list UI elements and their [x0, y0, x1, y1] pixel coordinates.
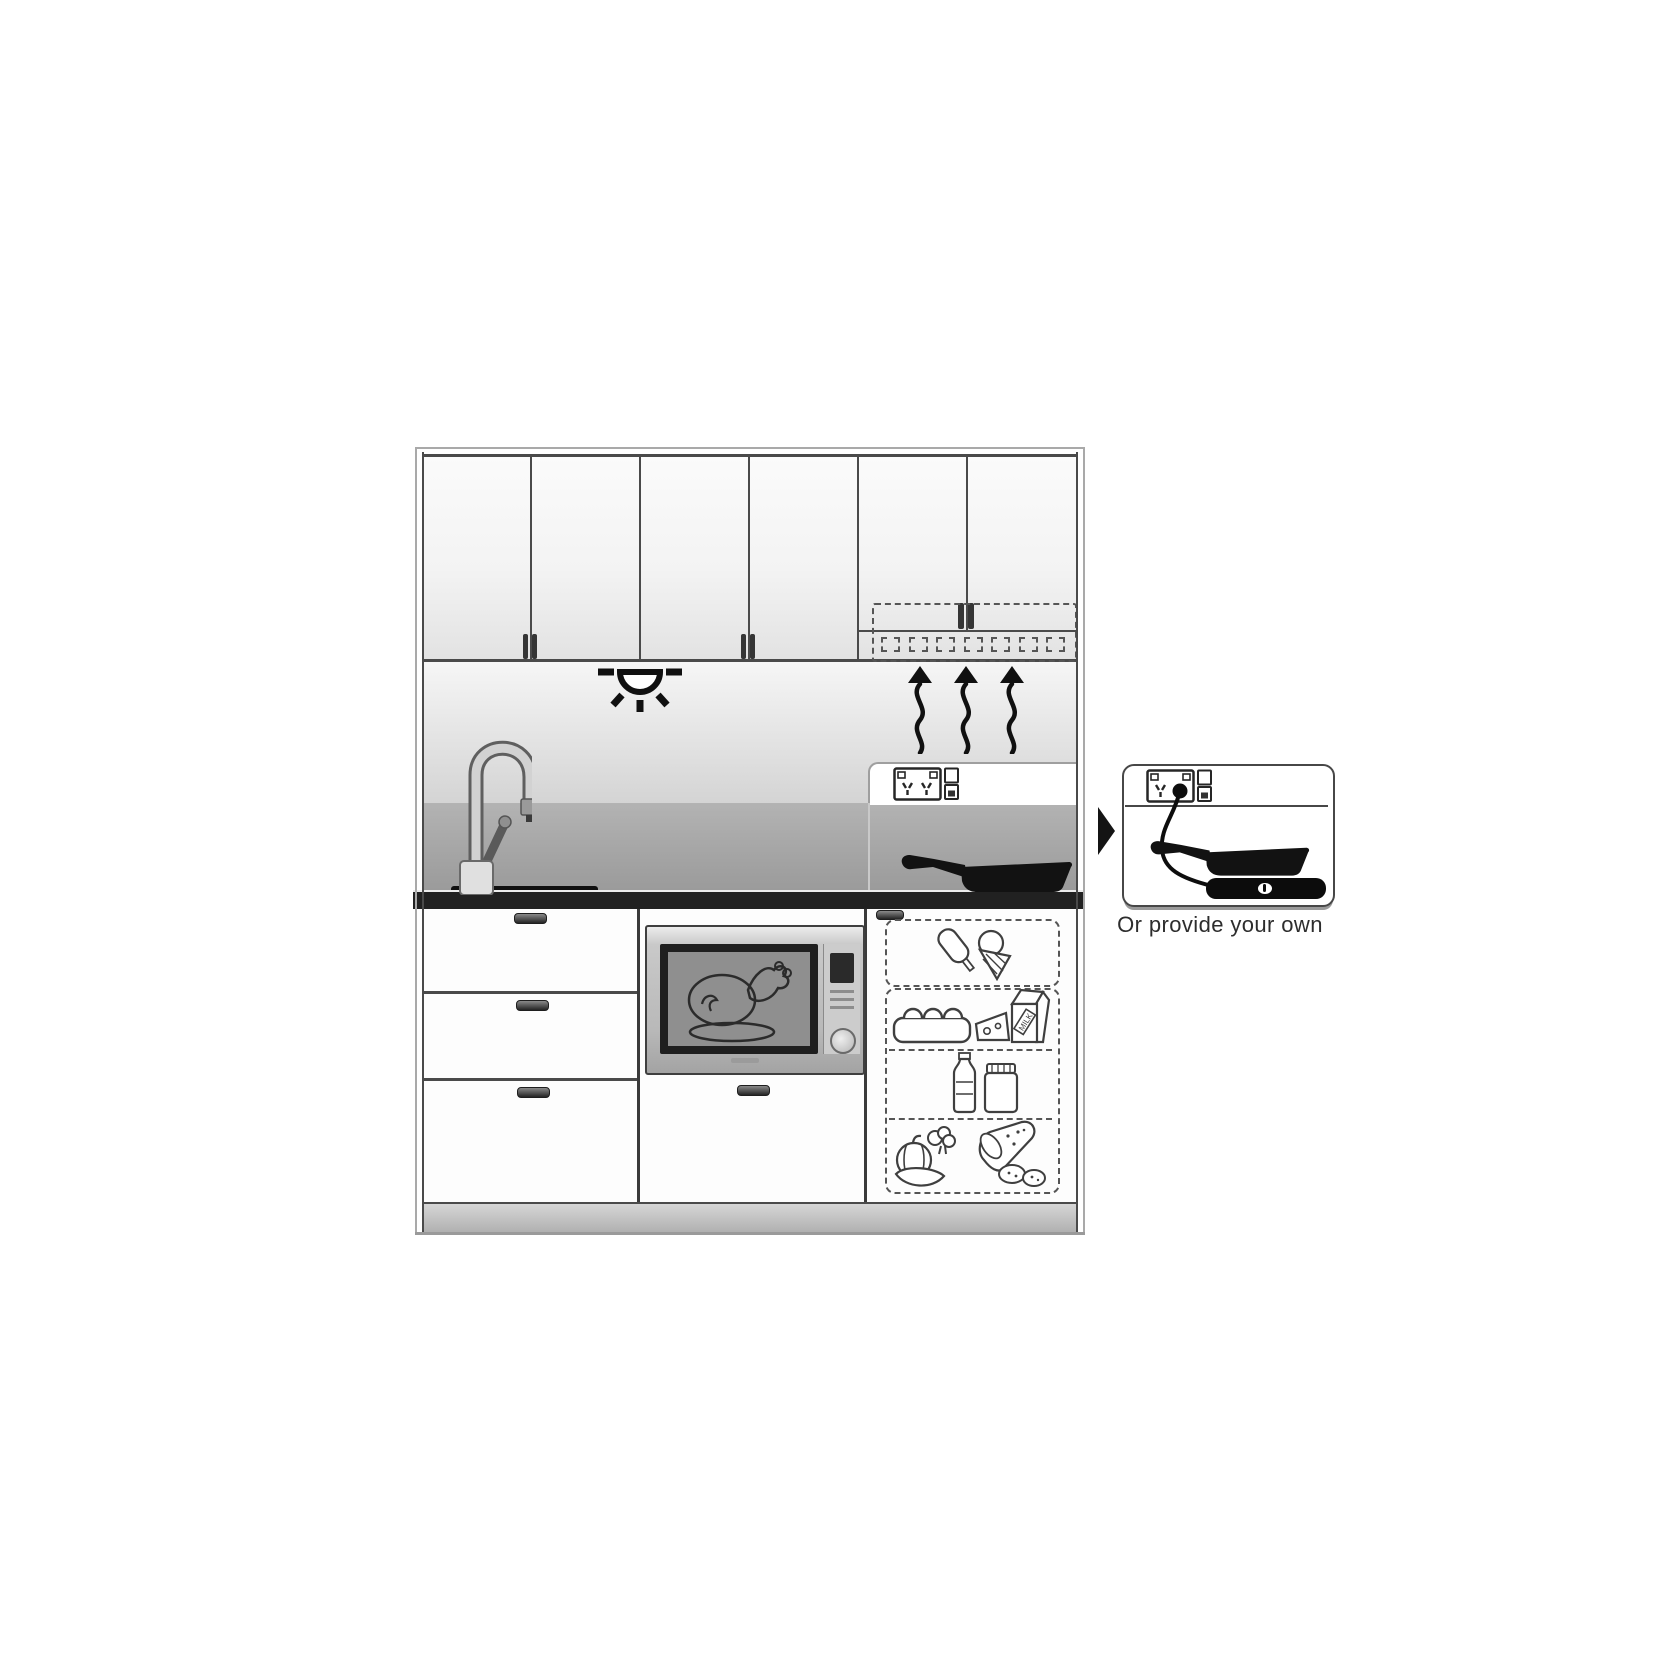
- unit-frame-right-inner: [1076, 452, 1078, 1233]
- microwave: [645, 925, 865, 1075]
- steam-arrow-icon: [907, 666, 933, 754]
- microwave-buttons: [830, 990, 854, 993]
- callout-arrow-icon: [1098, 807, 1115, 855]
- unit-frame-bottom: [415, 1232, 1085, 1235]
- callout-frying-pan-icon: [1150, 837, 1310, 877]
- vent-slot: [1046, 637, 1065, 652]
- handle-bar: [523, 634, 528, 659]
- upper-door-divider: [530, 456, 532, 660]
- eggs-cheese-milk-icons: MILK: [892, 988, 1056, 1048]
- upper-door-divider: [748, 456, 750, 660]
- ice-cream-icon: [933, 923, 1017, 981]
- unit-frame-left-outer: [415, 447, 417, 1235]
- rangehood-dashed-zone: [872, 603, 1077, 662]
- ceiling-light-icon: [596, 662, 684, 714]
- drawer-handle: [516, 1000, 549, 1011]
- unit-frame-right-outer: [1083, 447, 1085, 1235]
- vent-slot: [991, 637, 1010, 652]
- handle-bar: [750, 634, 755, 659]
- handle-bar: [532, 634, 537, 659]
- bottle-jar-icons: [946, 1052, 1026, 1114]
- vegetables-salami-icons: [888, 1116, 1056, 1188]
- microwave-control-panel: [823, 944, 860, 1054]
- drawer-divider: [424, 991, 637, 994]
- frying-pan-icon: [901, 851, 1073, 893]
- microwave-dial: [830, 1028, 856, 1054]
- unit-frame-left-inner: [422, 452, 424, 1233]
- cooktop-zone-edge: [868, 803, 870, 893]
- callout-caption: Or provide your own: [1100, 912, 1340, 938]
- roast-chicken-icon: [668, 952, 810, 1046]
- vent-slot: [964, 637, 983, 652]
- handle-bar: [741, 634, 746, 659]
- kitchen-diagram: MILK: [0, 0, 1676, 1676]
- rangehood-vent-grille: [881, 636, 1065, 652]
- vent-slot: [1019, 637, 1038, 652]
- power-outlet: [893, 767, 959, 802]
- faucet-icon: [432, 713, 532, 895]
- induction-control-dot: [1263, 884, 1266, 892]
- drawer-divider: [424, 1078, 637, 1081]
- vent-slot: [936, 637, 955, 652]
- microwave-brand: [731, 1058, 759, 1063]
- base-divider: [637, 909, 640, 1202]
- fridge-shelf-line: [889, 1049, 1052, 1051]
- microwave-buttons: [830, 1006, 854, 1009]
- steam-arrow-icon: [953, 666, 979, 754]
- microwave-buttons: [830, 998, 854, 1001]
- vent-slot: [909, 637, 928, 652]
- upper-door-divider: [639, 456, 641, 660]
- drawer-handle: [737, 1085, 770, 1096]
- microwave-display: [830, 953, 854, 983]
- steam-arrow-icon: [999, 666, 1025, 754]
- cabinet-handle: [523, 634, 537, 659]
- drawer-handle: [514, 913, 547, 924]
- unit-frame-top-outer: [415, 447, 1085, 449]
- drawer-handle: [517, 1087, 550, 1098]
- vent-slot: [881, 637, 900, 652]
- cabinet-handle: [741, 634, 755, 659]
- kickboard: [424, 1202, 1076, 1234]
- unit-frame-top-inner: [422, 454, 1078, 457]
